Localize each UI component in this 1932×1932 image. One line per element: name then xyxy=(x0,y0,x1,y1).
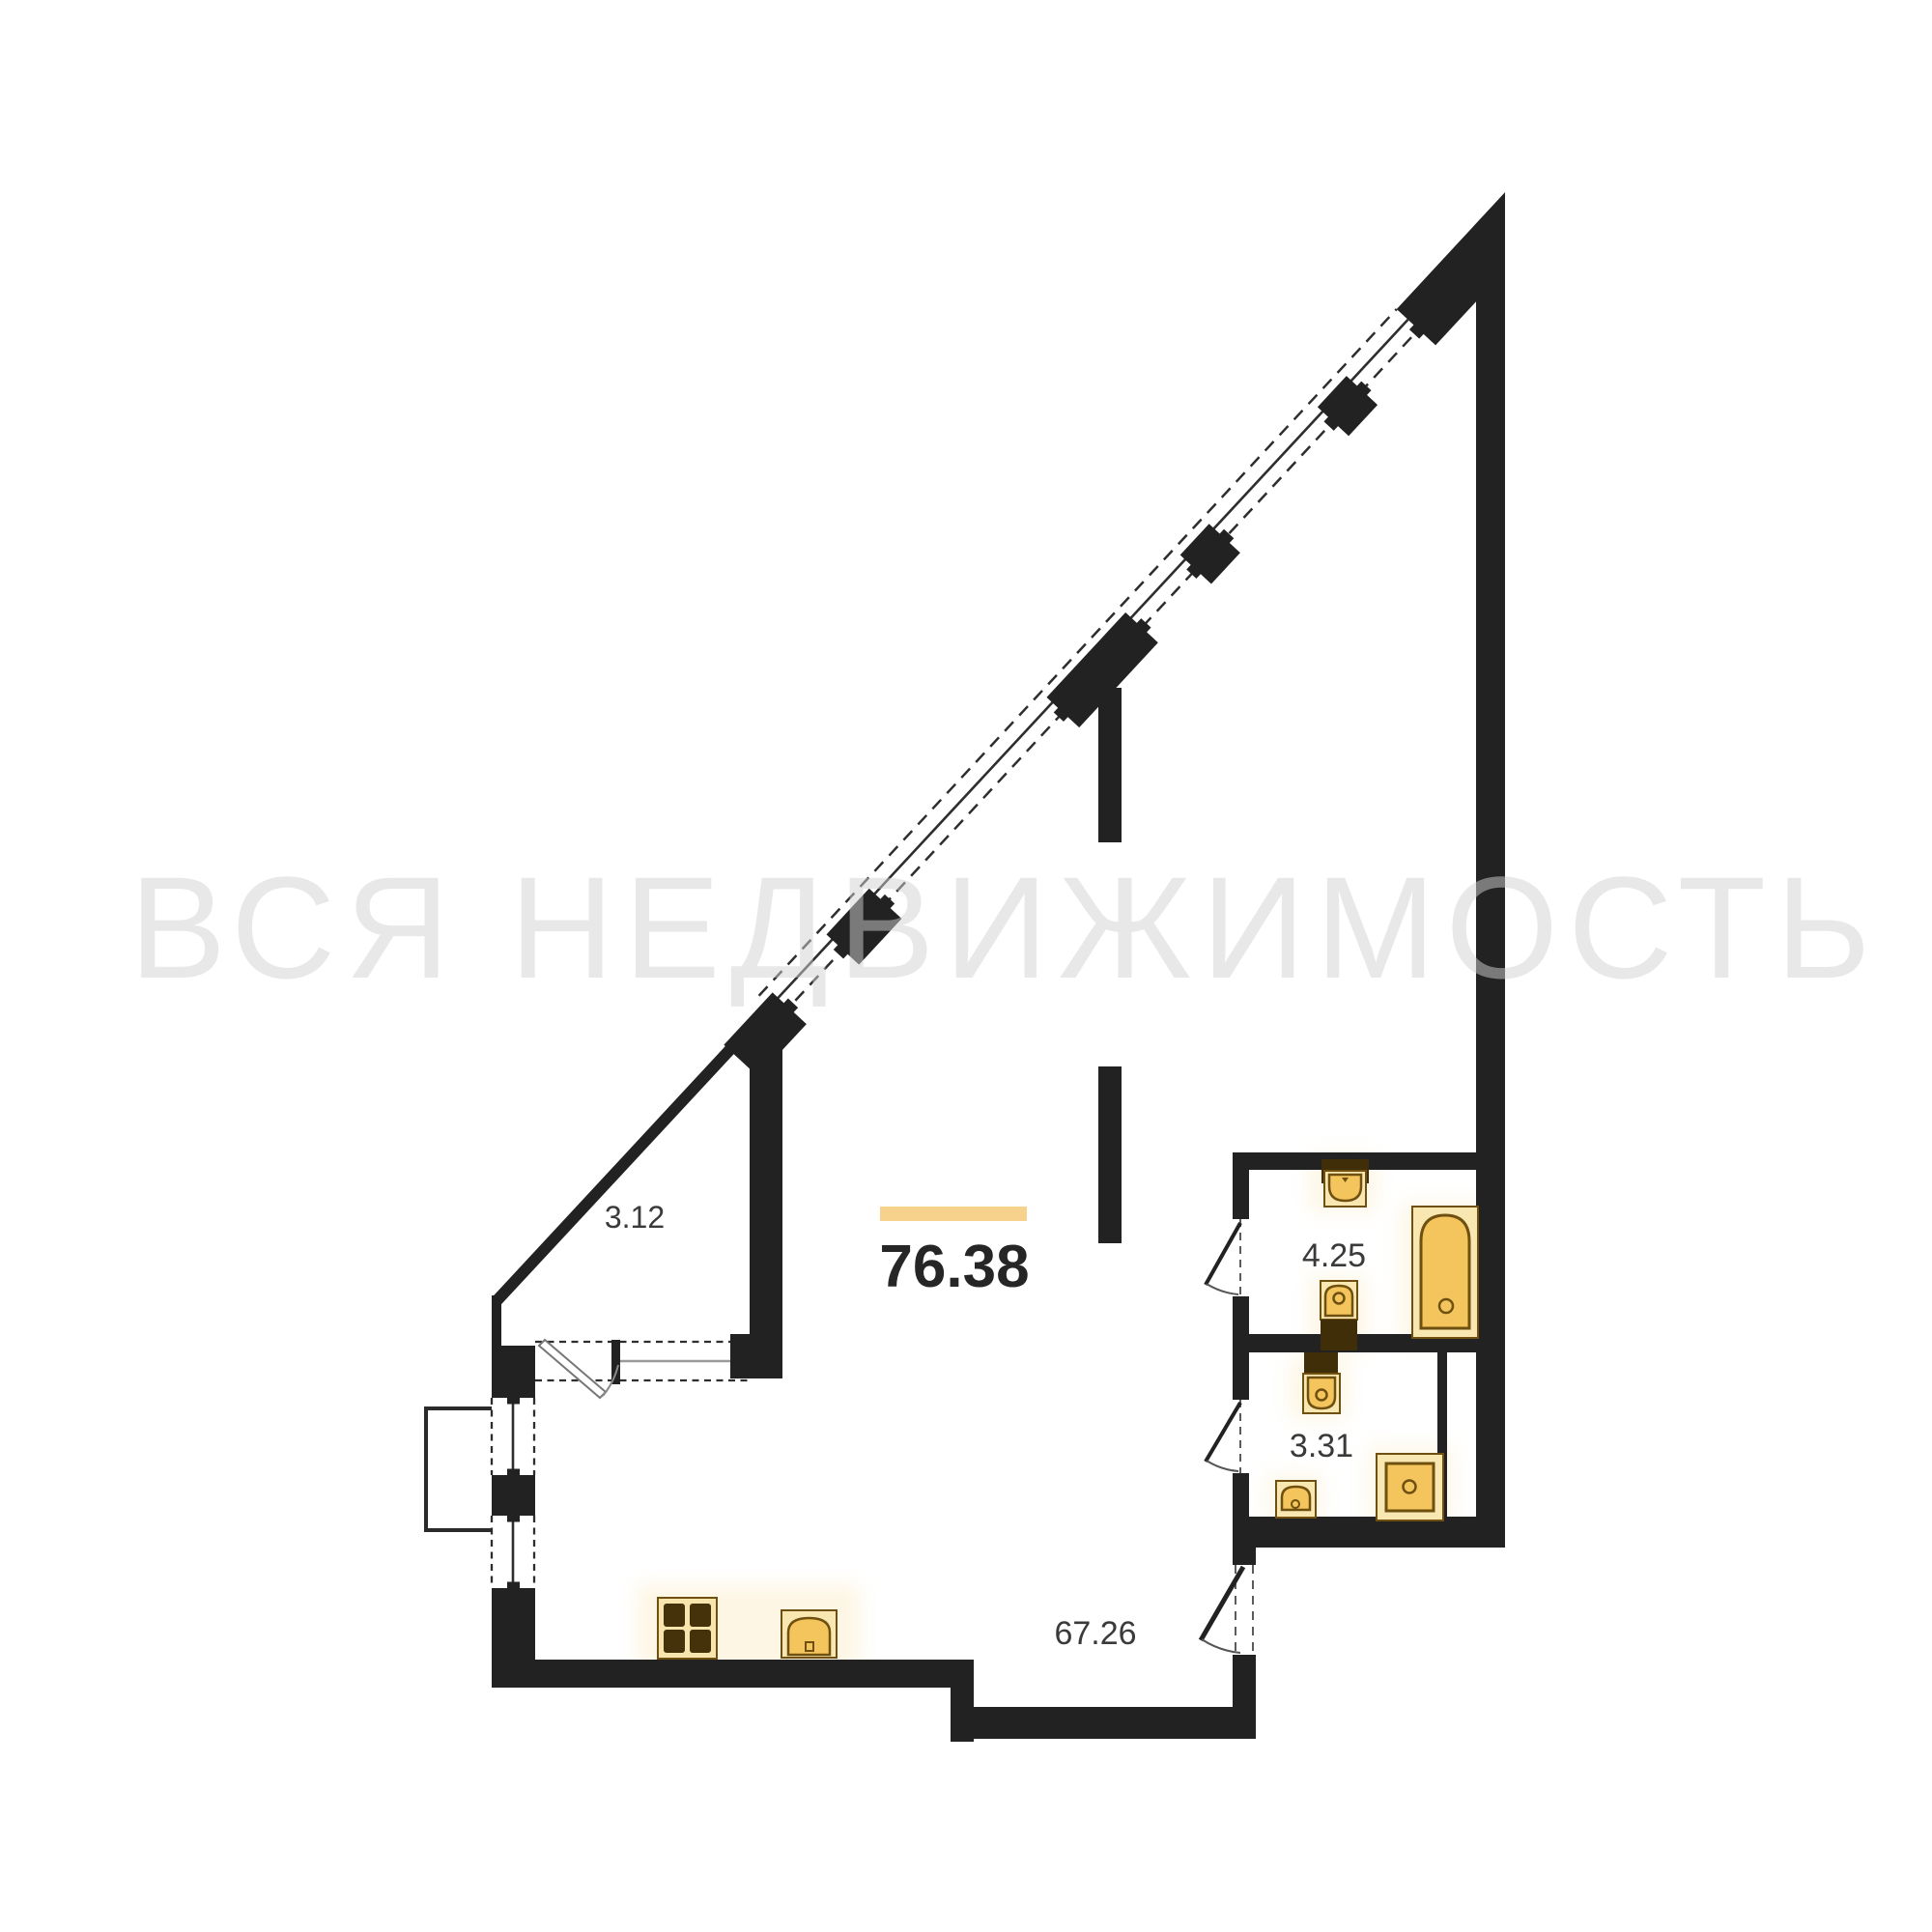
svg-text:ВСЯ НЕДВИЖИМОСТЬ: ВСЯ НЕДВИЖИМОСТЬ xyxy=(129,846,1881,1009)
svg-text:4.25: 4.25 xyxy=(1302,1237,1366,1274)
svg-text:3.31: 3.31 xyxy=(1290,1428,1353,1464)
svg-text:3.12: 3.12 xyxy=(605,1200,665,1235)
svg-text:76.38: 76.38 xyxy=(879,1234,1029,1300)
svg-text:67.26: 67.26 xyxy=(1054,1615,1136,1652)
